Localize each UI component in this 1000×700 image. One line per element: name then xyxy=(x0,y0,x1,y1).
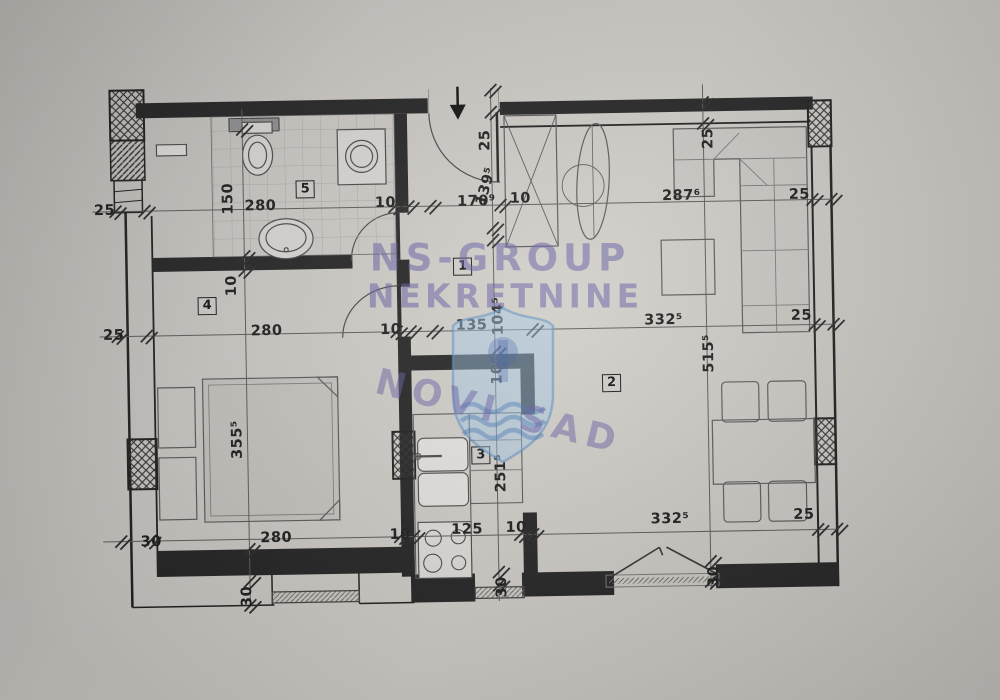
dim-label: 287⁶ xyxy=(662,187,701,204)
kitchen-sink-basin-2 xyxy=(418,473,469,507)
dim-label: 332⁵ xyxy=(651,511,690,528)
kitchen-top-wall xyxy=(404,353,534,370)
hall-shelf xyxy=(156,144,186,156)
kitchen-sink-basin-1 xyxy=(418,438,469,472)
right-window-pillar xyxy=(814,418,836,464)
nightstand-bottom xyxy=(159,457,197,520)
bottom-wall-right xyxy=(716,562,839,588)
room-label-bathroom: 5 xyxy=(295,180,314,198)
dim-label: 30 xyxy=(494,576,510,597)
dim-label: 25 xyxy=(791,308,812,324)
room-label-kitchen: 3 xyxy=(471,446,490,464)
chair xyxy=(723,481,761,522)
dim-label: 10 xyxy=(505,520,526,536)
dim-label: 10 xyxy=(510,190,531,206)
floor-plan: 1 2 3 4 5 25 150 280 10 170⁹ 139⁵ 10 287… xyxy=(0,0,1000,700)
dim-label: 355⁵ xyxy=(229,420,246,459)
nightstand-top xyxy=(158,387,196,448)
dim-label: 25 xyxy=(103,328,124,344)
right-wall-outer xyxy=(830,146,838,586)
dim-label: 30 xyxy=(706,566,722,587)
dim-label: 25 xyxy=(793,507,814,523)
balcony-door-zigzag xyxy=(610,546,715,577)
dim-label: 10 xyxy=(375,195,396,211)
dim-label: 280 xyxy=(260,530,292,547)
kitchen-shaft-pillar xyxy=(392,432,415,479)
dim-label: 251⁵ xyxy=(493,454,510,493)
dining-table xyxy=(712,419,815,485)
room-label-bedroom: 4 xyxy=(198,297,217,315)
shaft-left xyxy=(110,140,145,181)
toilet-bowl xyxy=(242,135,273,176)
bottom-wall-bedroom xyxy=(156,547,414,577)
dim-label: 10 xyxy=(224,275,240,296)
dim-label: 30 xyxy=(141,534,162,550)
bedroom-window xyxy=(272,590,359,603)
dim-label: 332⁵ xyxy=(644,312,683,329)
chair xyxy=(768,381,807,422)
floor-plan-photo: 1 2 3 4 5 25 150 280 10 170⁹ 139⁵ 10 287… xyxy=(0,0,1000,700)
dim-label: 135 xyxy=(456,317,488,334)
bed xyxy=(202,377,339,522)
pillar-top-right xyxy=(808,100,832,146)
left-window-pillar xyxy=(128,439,158,489)
dim-label: 515⁵ xyxy=(701,334,718,373)
washing-machine xyxy=(337,129,386,185)
bathroom-fixtures xyxy=(156,114,396,261)
dim-label: 280 xyxy=(251,323,283,340)
dim-label: 30 xyxy=(239,586,255,607)
room-label-living: 2 xyxy=(602,374,621,392)
dim-label: 25 xyxy=(477,129,493,150)
watermark-agency-type: NEKRETNINE xyxy=(367,277,643,316)
watermark-agency-name: NS-GROUP xyxy=(370,237,630,280)
left-wall-outer xyxy=(126,213,133,608)
dim-label: 150 xyxy=(220,183,237,215)
dim-label: 10 xyxy=(489,363,505,384)
dim-label: 125 xyxy=(451,521,483,538)
kitchen-fixtures xyxy=(413,413,524,579)
dim-label: 280 xyxy=(244,198,276,215)
coffee-table xyxy=(661,239,715,295)
sink xyxy=(259,218,314,259)
dim-label: 25 xyxy=(789,187,810,203)
top-wall-living xyxy=(500,97,813,115)
plant-pot xyxy=(562,164,605,207)
dim-label: 25 xyxy=(700,128,716,149)
dim-label: 25 xyxy=(94,203,115,219)
dim-label: 10 xyxy=(380,322,401,338)
dim-label: 10 xyxy=(389,527,410,543)
chair xyxy=(722,381,760,422)
entry-arrow-head xyxy=(450,105,466,120)
